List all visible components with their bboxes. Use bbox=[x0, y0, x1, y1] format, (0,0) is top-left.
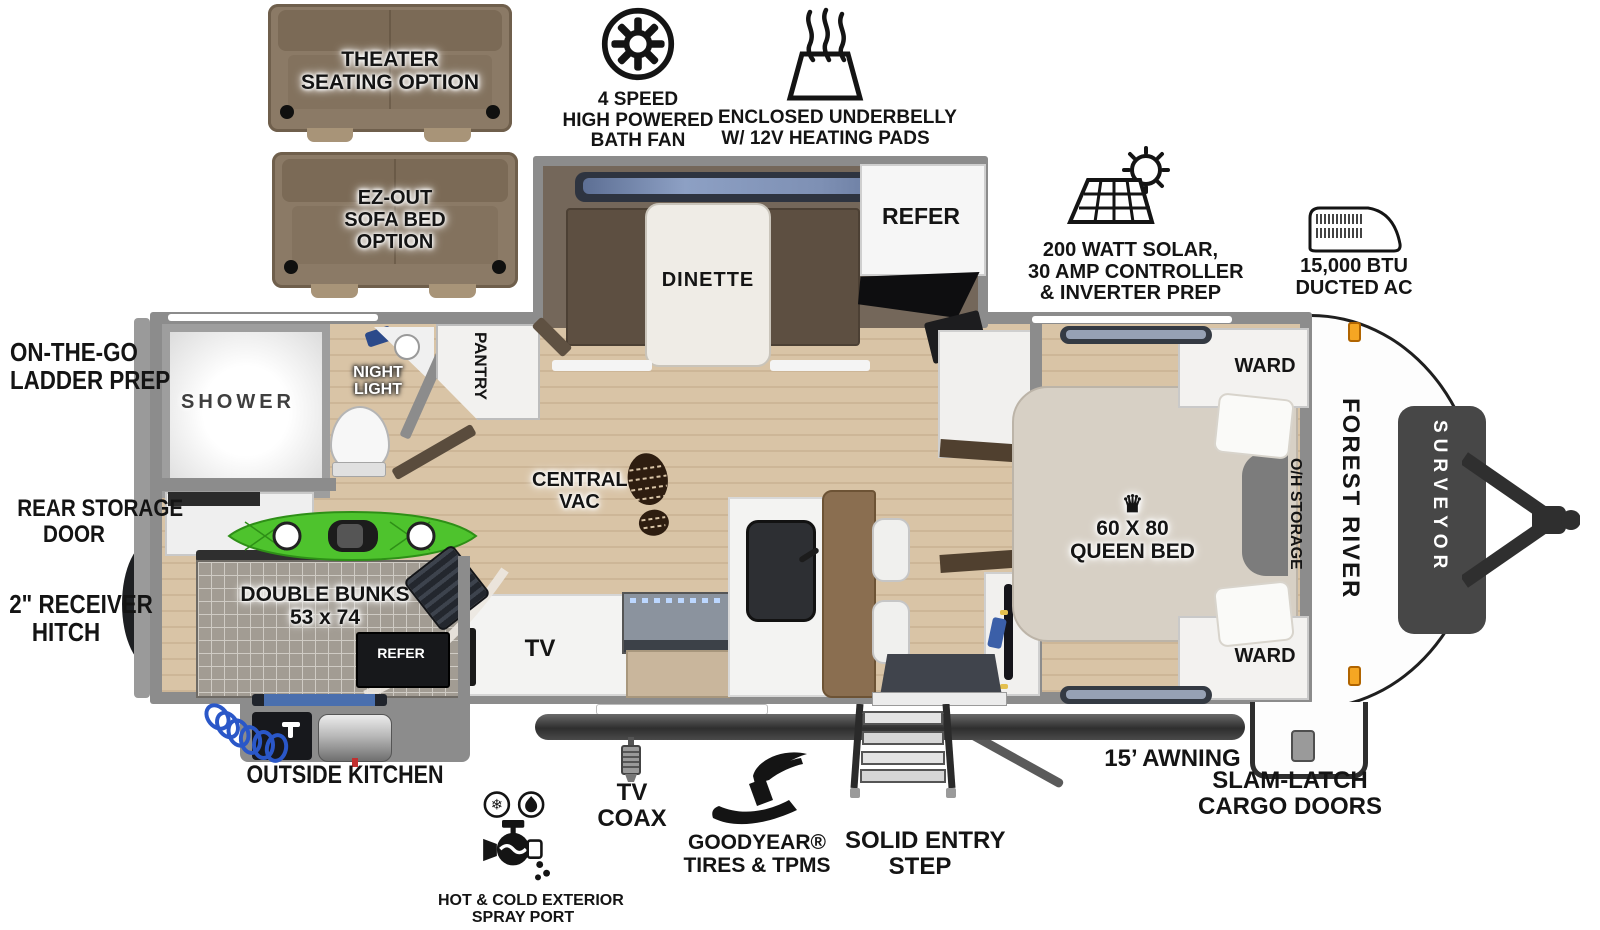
tv-coax-icon bbox=[618, 737, 644, 783]
spray-port-icon: ❄ bbox=[478, 788, 568, 888]
spray-port-label: HOT & COLD EXTERIORSPRAY PORT bbox=[438, 892, 608, 927]
brand-surveyor: SURVEYOR bbox=[1428, 420, 1450, 620]
toilet-tank bbox=[332, 462, 386, 477]
sofa-foot bbox=[424, 128, 470, 142]
window bbox=[168, 314, 378, 321]
floorplan-canvas: FOREST RIVER SURVEYOR DINETTE REFER SHOW… bbox=[0, 0, 1600, 930]
pantry-label: PANTRY bbox=[470, 332, 490, 412]
double-bunks-label: DOUBLE BUNKS53 x 74 bbox=[230, 584, 420, 629]
ward-bottom-label: WARD bbox=[1210, 646, 1320, 668]
bath-fan-label: 4 SPEEDHIGH POWEREDBATH FAN bbox=[558, 90, 718, 152]
ducted-ac-label: 15,000 BTUDUCTED AC bbox=[1290, 256, 1418, 299]
bedroom-window-top bbox=[1060, 326, 1212, 344]
outside-kitchen-griddle-shelf bbox=[252, 694, 387, 706]
peninsula-counter bbox=[822, 490, 876, 698]
bath-fan-icon bbox=[600, 6, 676, 82]
night-light-label: NIGHTLIGHT bbox=[338, 364, 418, 399]
outside-kitchen-label: OUTSIDE KITCHEN bbox=[246, 762, 444, 789]
underbelly-label: ENCLOSED UNDERBELLYW/ 12V HEATING PADS bbox=[718, 108, 933, 149]
goodyear-label: GOODYEAR®TIRES & TPMS bbox=[682, 832, 832, 877]
cupholder bbox=[284, 260, 298, 274]
ducted-ac-icon bbox=[1302, 198, 1404, 256]
range-base bbox=[626, 650, 730, 698]
water-heater-tank bbox=[318, 714, 392, 762]
slide-trim bbox=[552, 360, 652, 371]
cargo-door-latch bbox=[1291, 730, 1315, 762]
pillow bbox=[1213, 580, 1295, 648]
window bbox=[1032, 316, 1232, 323]
cupholder bbox=[280, 105, 294, 119]
slide-trim bbox=[770, 360, 870, 371]
solar-icon bbox=[1058, 146, 1176, 240]
dinette-label: DINETTE bbox=[648, 270, 768, 292]
crown-icon: ♛ bbox=[1050, 492, 1215, 518]
marker-light-top bbox=[1348, 322, 1361, 342]
brand-forest-river: FOREST RIVER bbox=[1336, 398, 1364, 643]
bunkroom-wall bbox=[458, 556, 470, 704]
heating-pads-icon bbox=[780, 6, 870, 106]
theater-seating-label: THEATERSEATING OPTION bbox=[268, 48, 512, 94]
bedroom-window-bottom bbox=[1060, 686, 1212, 704]
rear-storage-door-label: REAR STORAGEDOOR bbox=[17, 496, 131, 548]
queen-bed-label: ♛ 60 X 80 QUEEN BED bbox=[1050, 492, 1215, 563]
refrigerator-label: REFER bbox=[862, 204, 980, 229]
wall-sconce bbox=[1000, 684, 1008, 689]
solar-label: 200 WATT SOLAR,30 AMP CONTROLLER& INVERT… bbox=[1028, 240, 1233, 305]
sofa-foot bbox=[429, 284, 476, 298]
entry-step-icon bbox=[850, 704, 956, 798]
ward-top-label: WARD bbox=[1210, 356, 1320, 378]
entry-door-mat bbox=[880, 654, 1002, 696]
marker-light-bottom bbox=[1348, 666, 1361, 686]
goodyear-wingfoot-icon bbox=[705, 748, 810, 836]
cupholder bbox=[486, 105, 500, 119]
hitch-a-frame-icon bbox=[1462, 450, 1580, 590]
ez-out-sofa-label: EZ-OUTSOFA BEDOPTION bbox=[272, 187, 518, 253]
shower-label: SHOWER bbox=[168, 392, 308, 414]
bathroom-wall bbox=[150, 478, 336, 491]
theater-seating-option: THEATERSEATING OPTION bbox=[268, 4, 512, 132]
bathroom-sink-bowl bbox=[394, 334, 420, 360]
sofa-back bbox=[278, 10, 502, 51]
tv-label: TV bbox=[505, 636, 575, 662]
central-vac-label: CENTRALVAC bbox=[532, 470, 627, 513]
oh-storage-label: O/H STORAGE bbox=[1286, 458, 1304, 588]
entry-step-label: SOLID ENTRYSTEP bbox=[845, 828, 995, 880]
stool bbox=[872, 518, 910, 582]
ladder-prep-label: ON-THE-GOLADDER PREP bbox=[10, 338, 132, 394]
cargo-doors-label: SLAM-LATCHCARGO DOORS bbox=[1195, 768, 1385, 820]
dinette-bench-right bbox=[760, 208, 860, 346]
outside-refrigerator-label: REFER bbox=[356, 646, 446, 661]
sofa-foot bbox=[311, 284, 358, 298]
receiver-hitch-label: 2" RECEIVERHITCH bbox=[9, 590, 123, 646]
pillow bbox=[1213, 392, 1295, 460]
outside-kitchen-faucet bbox=[288, 722, 293, 738]
cupholder bbox=[492, 260, 506, 274]
kitchen-sink bbox=[746, 520, 816, 622]
headboard bbox=[1242, 452, 1288, 576]
svg-text:❄: ❄ bbox=[491, 797, 503, 814]
tv-coax-label: TVCOAX bbox=[582, 780, 682, 832]
ez-out-sofa-bed-option: EZ-OUTSOFA BEDOPTION bbox=[272, 152, 518, 288]
sofa-foot bbox=[307, 128, 353, 142]
wall-sconce bbox=[1000, 610, 1008, 615]
